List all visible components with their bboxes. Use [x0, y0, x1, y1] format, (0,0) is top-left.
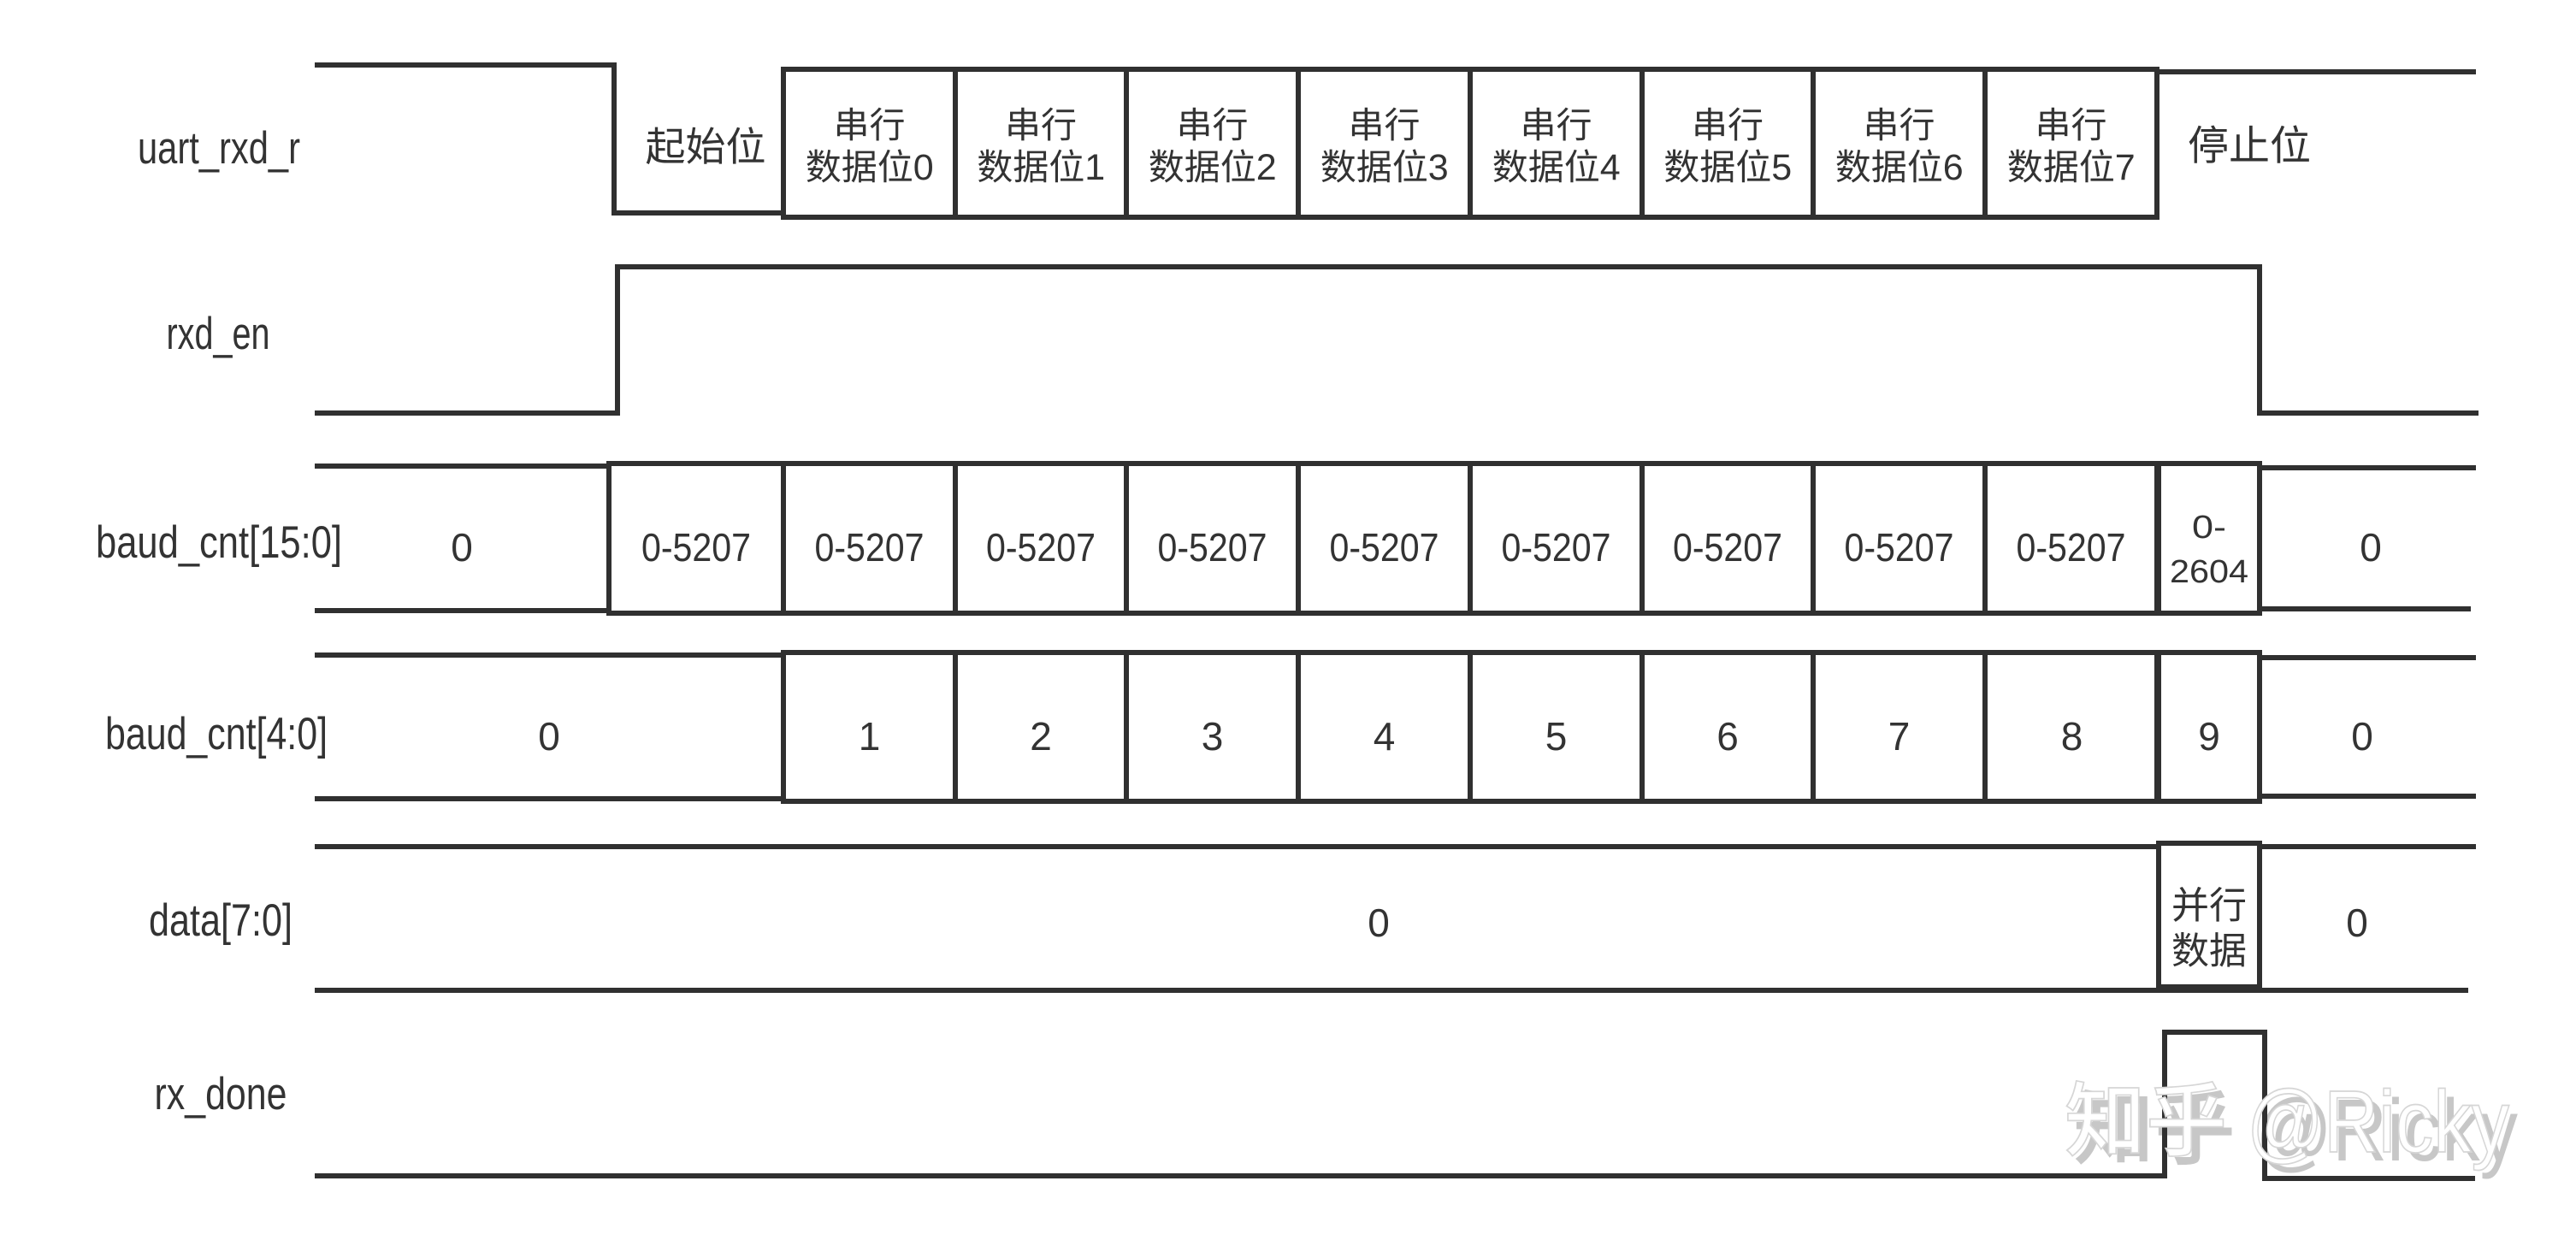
- svg-text:0: 0: [451, 525, 473, 570]
- svg-text:0-5207: 0-5207: [1845, 525, 1954, 570]
- svg-text:0-5207: 0-5207: [641, 525, 751, 570]
- svg-text:2: 2: [1030, 714, 1052, 759]
- svg-text:1: 1: [859, 714, 881, 759]
- svg-text:4: 4: [1600, 147, 1621, 188]
- svg-text:@Ricky: @Ricky: [2247, 1072, 2509, 1171]
- svg-text:5: 5: [1771, 147, 1792, 188]
- svg-text:3: 3: [1428, 147, 1449, 188]
- svg-text:0-: 0-: [2192, 510, 2226, 546]
- svg-text:6: 6: [1716, 714, 1739, 759]
- svg-text:0: 0: [2360, 525, 2382, 570]
- svg-text:6: 6: [1943, 147, 1964, 188]
- svg-text:rx_done: rx_done: [155, 1069, 287, 1119]
- svg-text:2604: 2604: [2170, 554, 2248, 590]
- svg-text:2: 2: [1256, 147, 1277, 188]
- svg-text:7: 7: [2115, 147, 2136, 188]
- svg-text:7: 7: [1888, 714, 1911, 759]
- svg-text:0-5207: 0-5207: [1330, 525, 1439, 570]
- svg-text:0: 0: [913, 147, 934, 188]
- svg-text:data[7:0]: data[7:0]: [149, 895, 292, 946]
- svg-text:3: 3: [1202, 714, 1224, 759]
- svg-text:baud_cnt[4:0]: baud_cnt[4:0]: [105, 709, 328, 759]
- svg-text:rxd_en: rxd_en: [167, 309, 270, 359]
- svg-text:0: 0: [538, 714, 560, 759]
- svg-text:0: 0: [2351, 714, 2373, 759]
- svg-text:0-5207: 0-5207: [1673, 525, 1782, 570]
- svg-text:baud_cnt[15:0]: baud_cnt[15:0]: [96, 517, 342, 568]
- svg-text:0-5207: 0-5207: [1158, 525, 1267, 570]
- svg-text:0: 0: [2346, 901, 2368, 945]
- svg-text:0-5207: 0-5207: [986, 525, 1096, 570]
- svg-text:4: 4: [1374, 714, 1396, 759]
- svg-text:5: 5: [1545, 714, 1568, 759]
- svg-text:8: 8: [2061, 714, 2083, 759]
- svg-text:1: 1: [1084, 147, 1105, 188]
- svg-text:0-5207: 0-5207: [1502, 525, 1611, 570]
- svg-text:9: 9: [2198, 714, 2220, 759]
- svg-text:0-5207: 0-5207: [2017, 525, 2126, 570]
- svg-text:0: 0: [1368, 901, 1390, 945]
- svg-text:uart_rxd_r: uart_rxd_r: [138, 123, 300, 174]
- svg-text:0-5207: 0-5207: [815, 525, 925, 570]
